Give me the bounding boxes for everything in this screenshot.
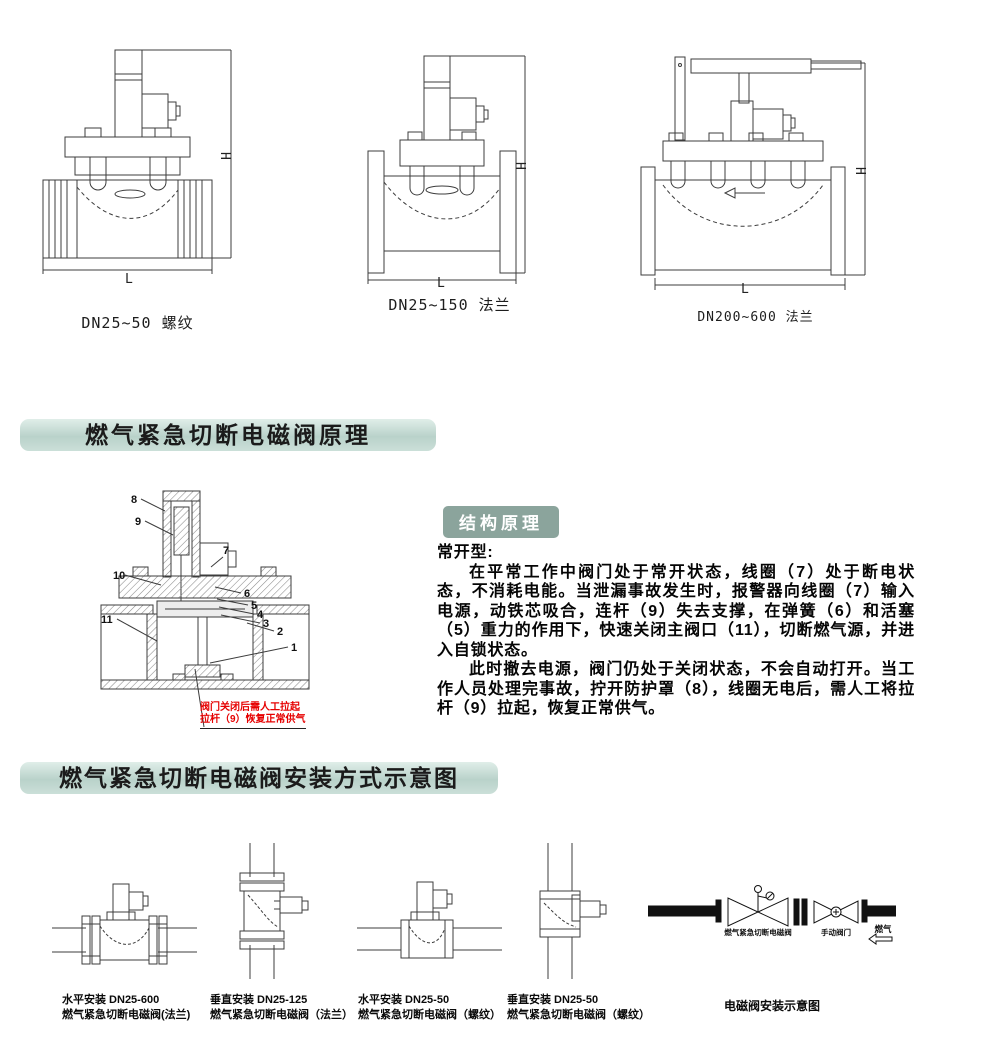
install-caption-4-line2: 燃气紧急切断电磁阀（螺纹） <box>507 1008 650 1023</box>
installation-section-title: 燃气紧急切断电磁阀安装方式示意图 <box>20 762 498 794</box>
valve-cross-section-diagram: 8 9 7 10 6 5 4 3 2 11 1 <box>95 483 315 733</box>
install-caption-3: 水平安装 DN25-50 燃气紧急切断电磁阀（螺纹） <box>358 993 501 1023</box>
schematic-manual-valve-label: 手动阀门 <box>821 927 851 937</box>
valve-drawing-flanged-small: H L <box>362 48 537 288</box>
install-diagram-vertical-flange <box>212 843 312 979</box>
valve-type-heading: 常开型: <box>437 543 915 563</box>
principle-paragraph-2: 此时撤去电源，阀门仍处于关闭状态，不会自动打开。当工作人员处理完事故，拧开防护罩… <box>437 660 915 719</box>
dim-l-label: L <box>741 282 749 295</box>
dim-h-label: H <box>217 152 232 160</box>
part-label-10: 10 <box>113 570 125 582</box>
install-caption-1-line1: 水平安装 DN25-600 <box>62 993 190 1008</box>
install-diagram-horizontal-flange <box>52 876 197 978</box>
install-diagram-vertical-thread <box>506 843 618 979</box>
principle-paragraph-1: 在平常工作中阀门处于常开状态，线圈（7）处于断电状态，不消耗电能。当泄漏事故发生… <box>437 563 915 661</box>
red-reset-note-line2: 拉杆（9）恢复正常供气 <box>200 714 306 726</box>
part-label-2: 2 <box>277 626 283 638</box>
structure-principle-badge: 结构原理 <box>443 506 559 538</box>
install-caption-3-line1: 水平安装 DN25-50 <box>358 993 501 1008</box>
part-label-11: 11 <box>101 614 113 626</box>
install-caption-4-line1: 垂直安装 DN25-50 <box>507 993 650 1008</box>
pipeline-schematic: 燃气紧急切断电磁阀 手动阀门 燃气 <box>648 882 896 946</box>
schematic-gas-label: 燃气 <box>874 924 892 934</box>
valve-drawing-threaded: H L <box>35 22 240 287</box>
install-caption-4: 垂直安装 DN25-50 燃气紧急切断电磁阀（螺纹） <box>507 993 650 1023</box>
catalog-page: H L DN25~50 螺纹 H L DN25~150 法兰 <box>0 0 987 1050</box>
schematic-caption: 电磁阀安装示意图 <box>724 997 820 1014</box>
install-caption-2: 垂直安装 DN25-125 燃气紧急切断电磁阀（法兰） <box>210 993 353 1023</box>
red-reset-note: 阀门关闭后需人工拉起 拉杆（9）恢复正常供气 <box>200 702 306 729</box>
install-diagram-horizontal-thread <box>357 878 502 975</box>
dim-l-label: L <box>125 272 133 287</box>
part-label-9: 9 <box>135 516 141 528</box>
principle-section-title: 燃气紧急切断电磁阀原理 <box>20 419 436 451</box>
dim-h-label: H <box>512 162 527 170</box>
install-caption-3-line2: 燃气紧急切断电磁阀（螺纹） <box>358 1008 501 1023</box>
part-label-8: 8 <box>131 494 137 506</box>
dim-l-label: L <box>437 276 445 288</box>
valve-drawing-flanged-large: H L <box>633 45 878 295</box>
schematic-valve-label: 燃气紧急切断电磁阀 <box>724 927 792 937</box>
install-caption-2-line1: 垂直安装 DN25-125 <box>210 993 353 1008</box>
install-caption-1: 水平安装 DN25-600 燃气紧急切断电磁阀(法兰) <box>62 993 190 1023</box>
part-label-1: 1 <box>291 642 297 654</box>
red-reset-note-line1: 阀门关闭后需人工拉起 <box>200 702 306 714</box>
principle-text-block: 常开型: 在平常工作中阀门处于常开状态，线圈（7）处于断电状态，不消耗电能。当泄… <box>437 543 915 719</box>
install-caption-2-line2: 燃气紧急切断电磁阀（法兰） <box>210 1008 353 1023</box>
install-caption-1-line2: 燃气紧急切断电磁阀(法兰) <box>62 1008 190 1023</box>
part-label-6: 6 <box>244 588 250 600</box>
drawing-caption-flanged-large: DN200~600 法兰 <box>633 306 878 325</box>
drawing-caption-flanged-small: DN25~150 法兰 <box>362 294 537 315</box>
drawing-caption-threaded: DN25~50 螺纹 <box>35 312 240 333</box>
gas-flow-arrow <box>869 934 892 944</box>
part-label-7: 7 <box>223 545 229 557</box>
part-label-3: 3 <box>263 618 269 630</box>
dim-h-label: H <box>852 167 867 175</box>
